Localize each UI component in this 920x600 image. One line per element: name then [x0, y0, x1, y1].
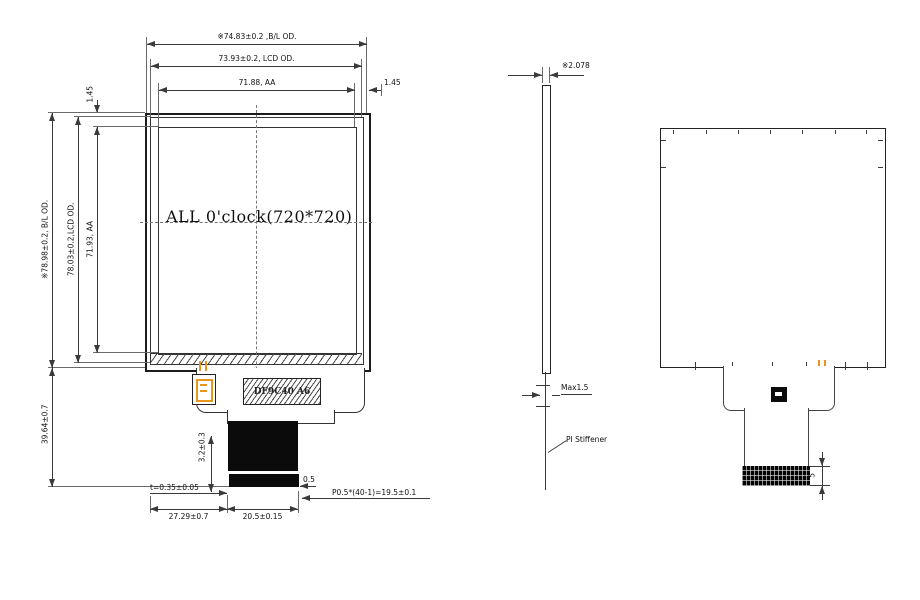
edge-tick	[867, 362, 868, 370]
extension-line	[146, 37, 147, 113]
edge-tick	[878, 167, 883, 168]
dim-line-bl-width	[147, 44, 367, 45]
bracket-tick	[536, 385, 550, 386]
extension-line	[74, 362, 150, 363]
dim-line-thickness-right	[550, 75, 584, 76]
extension-line	[48, 112, 145, 113]
dim-line-edge-gap	[300, 486, 316, 487]
edge-tick	[738, 130, 739, 134]
dim-arrow-up	[819, 486, 825, 494]
dim-line-fpc-max	[522, 395, 540, 396]
extension-line	[381, 84, 382, 96]
dim-line-right-margin	[369, 90, 381, 91]
dim-line-lcd-height	[78, 117, 79, 363]
dim-bl-height-label: ※78.98±0.2, B/L OD.	[42, 179, 51, 299]
dim-thickness-label: t=0.35±0.05	[150, 484, 199, 493]
extension-line	[93, 126, 158, 127]
dim-line-aa-height	[97, 127, 98, 353]
edge-tick	[770, 130, 771, 134]
extension-line	[542, 67, 543, 83]
edge-tick	[835, 130, 836, 134]
dim-right-margin-label: 1.45	[384, 79, 401, 88]
back-component-mark	[775, 392, 782, 396]
dim-line-aa-width	[159, 90, 355, 91]
dim-leader-pitch	[302, 498, 430, 499]
edge-tick	[878, 140, 883, 141]
front-fpc-contact-strip	[229, 474, 299, 487]
active-area-label: ALL 0'clock(720*720)	[166, 207, 352, 226]
dim-stiffener-height-label: 3.2±0.3	[199, 387, 208, 507]
edge-tick	[706, 130, 707, 134]
dim-leader	[552, 395, 560, 396]
dim-lcd-height-label: 78.03±0.2,LCD OD.	[68, 179, 77, 299]
dim-fpc-width-label: 20.5±0.15	[227, 513, 298, 522]
edge-tick	[673, 130, 674, 134]
side-fpc-tail-line	[545, 372, 546, 490]
edge-tick	[695, 362, 696, 370]
dim-tail-length-label: 39.64±0.7	[42, 364, 51, 484]
dim-leader-thickness	[150, 493, 227, 494]
dim-line-bl-height	[52, 113, 53, 368]
dim-line-fpc-outer-width	[150, 509, 227, 510]
lcd-module-outline-drawing: ALL 0'clock(720*720) ※74.83±0.2 ,B/L OD.…	[0, 0, 920, 600]
driver-ic-hatch-overlay	[244, 379, 320, 404]
extension-line	[93, 352, 158, 353]
leader-line	[548, 440, 567, 453]
back-panel-outline	[660, 128, 886, 368]
dim-arrow-down	[819, 458, 825, 466]
dim-bl-width-label: ※74.83±0.2 ,B/L OD.	[147, 33, 367, 42]
dim-pitch-label: P0.5*(40-1)=19.5±0.1	[332, 489, 416, 498]
extension-line	[298, 491, 299, 513]
extension-line	[48, 367, 145, 368]
front-component-mark	[200, 384, 207, 386]
extension-line	[74, 116, 150, 117]
dim-aa-height-label: 71.93, AA	[87, 179, 96, 299]
back-fpc-tail	[744, 408, 809, 469]
dim-line-stiffener-height	[211, 436, 212, 492]
front-driver-ic-marking: DF9C40 A6	[243, 378, 321, 405]
front-orange-tick	[205, 361, 207, 371]
dim-fpc-outer-width-label: 27.29±0.7	[150, 513, 227, 522]
dim-fpc-max-label: Max1.5	[561, 384, 592, 395]
dim-line-tail-length	[52, 368, 53, 487]
dim-line-lcd-width	[151, 66, 362, 67]
edge-tick	[661, 140, 666, 141]
edge-tick	[802, 130, 803, 134]
dim-aa-width-label: 71.88, AA	[159, 79, 355, 88]
front-fpc-stiffener-block	[228, 421, 298, 471]
dim-line-thickness-left	[508, 75, 542, 76]
dim-thickness-total-label: ※2.078	[562, 62, 590, 71]
bracket-tick	[536, 406, 550, 407]
pi-stiffener-label: PI Stiffener	[566, 436, 607, 445]
back-contact-strip	[742, 466, 810, 486]
dim-line-fpc-width	[227, 509, 298, 510]
front-orange-tick	[199, 361, 201, 371]
edge-tick	[845, 362, 846, 370]
dim-connector-height-label: 5	[809, 455, 818, 495]
dim-top-margin-label: 1.45	[87, 74, 96, 114]
front-active-area-outline	[158, 127, 357, 355]
edge-tick	[661, 167, 666, 168]
dim-lcd-width-label: 73.93±0.2, LCD OD.	[151, 55, 362, 64]
side-panel-profile	[542, 85, 551, 374]
extension-line	[366, 37, 367, 113]
edge-tick	[866, 130, 867, 134]
